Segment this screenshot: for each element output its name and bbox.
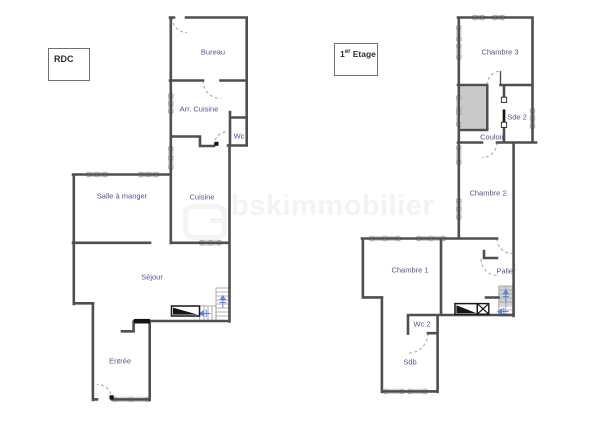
walls-etage	[362, 18, 536, 392]
room-label-arr-cuisine: Arr. Cuisine	[180, 105, 219, 113]
room-label-salle-a-manger: Salle à manger	[97, 192, 147, 200]
room-label-chambre1: Chambre 1	[391, 266, 428, 274]
room-label-cuisine: Cuisine	[189, 193, 214, 201]
room-label-sdb: Sdb	[403, 358, 416, 366]
room-label-sde2: Sde 2	[507, 113, 527, 121]
floorplan-canvas: bskimmobilier	[0, 0, 600, 424]
walls-rdc	[73, 18, 247, 401]
room-label-sejour: Séjour	[141, 273, 163, 281]
floor-title-etage-rest: Etage	[350, 49, 376, 59]
sliding-door-sde2	[501, 97, 506, 127]
room-label-wc2: Wc 2	[413, 320, 430, 328]
floor-title-rdc: RDC	[48, 48, 90, 81]
floor-title-etage: 1er Etage	[334, 43, 378, 76]
door-arcs	[97, 18, 512, 400]
floorplan-drawing	[0, 0, 600, 424]
closet-shaded-area	[460, 86, 486, 128]
room-label-wc: Wc	[234, 132, 245, 140]
floor-title-rdc-label: RDC	[54, 54, 74, 64]
room-label-entree: Entrée	[109, 357, 131, 365]
room-label-chambre2: Chambre 2	[469, 189, 506, 197]
room-label-palier: Palier	[496, 267, 515, 275]
room-label-couloir: Couloir	[480, 133, 504, 141]
room-label-bureau: Bureau	[201, 48, 225, 56]
windows	[86, 15, 535, 402]
room-label-chambre3: Chambre 3	[481, 48, 518, 56]
stairs-rdc	[200, 288, 230, 321]
